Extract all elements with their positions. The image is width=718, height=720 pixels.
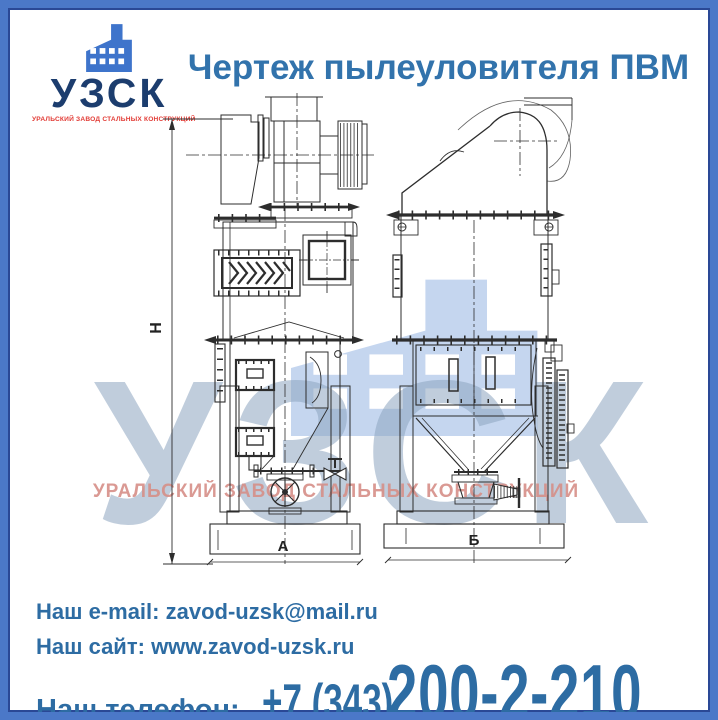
contact-email-label: Наш e-mail:: [36, 599, 159, 624]
dim-label-height: Н: [148, 322, 165, 334]
dim-label-width-side: Б: [469, 532, 480, 549]
contact-email-value: zavod-uzsk@mail.ru: [166, 599, 378, 624]
contact-phone-label: Наш телефон:: [36, 694, 240, 720]
page-frame: УЗСК УРАЛЬСКИЙ ЗАВОД СТАЛЬНЫХ КОНСТРУКЦИ…: [0, 0, 718, 720]
contact-phone-line: Наш телефон:+7 (343)200-2-210: [36, 653, 718, 720]
contact-phone-prefix: +7 (343): [262, 677, 393, 720]
contact-email-line: Наш e-mail: zavod-uzsk@mail.ru: [36, 599, 378, 625]
watermark-acronym: УЗСК: [94, 338, 658, 567]
contact-phone-number: 200-2-210: [387, 653, 642, 720]
dim-label-width-front: А: [278, 538, 289, 555]
